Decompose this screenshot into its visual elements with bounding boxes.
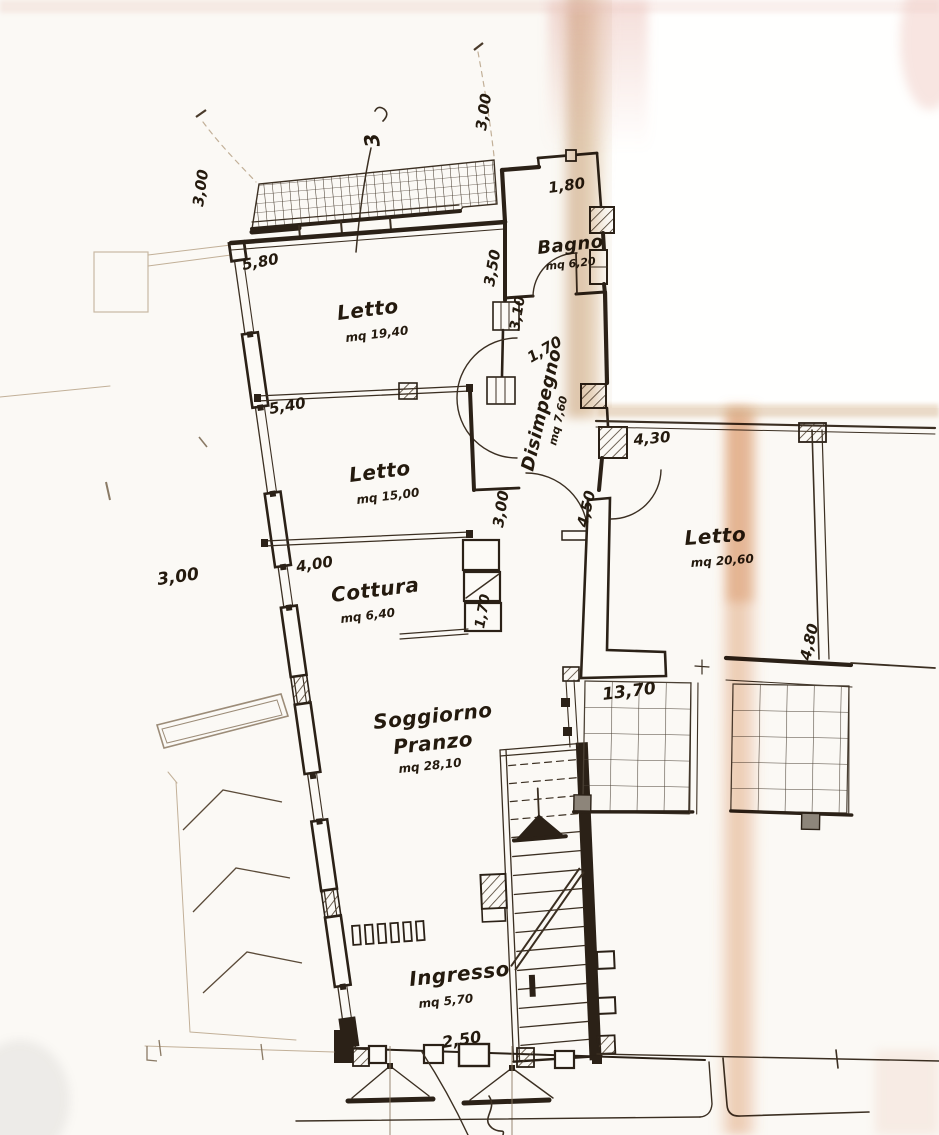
- cupboard-cell: [463, 540, 499, 570]
- counter-line: [400, 629, 468, 639]
- door-leaf: [562, 531, 588, 540]
- room-label-letto-1: Letto: [336, 294, 400, 325]
- dim-4-30: 4,30: [632, 428, 671, 449]
- room-label-ingresso: Ingresso: [408, 957, 511, 991]
- room-label-pranzo: Pranzo: [392, 727, 474, 759]
- parking-chevrons: [183, 790, 302, 993]
- room-area-ingresso: mq 5,70: [418, 991, 474, 1011]
- pillar-hatch: [517, 1048, 534, 1067]
- dim-3-50: 3,50: [480, 248, 504, 288]
- pillar-hatch: [353, 1048, 369, 1066]
- tile-block: [574, 795, 591, 811]
- exterior-wall-left: [228, 241, 359, 1048]
- corner-pillar: [334, 1030, 353, 1063]
- planter-strip: [157, 694, 288, 748]
- dim-top-right: 3,00: [472, 92, 495, 131]
- room-label-cottura: Cottura: [330, 572, 421, 607]
- room-area-cottura: mq 6,40: [340, 605, 396, 626]
- room-area-letto-1: mq 19,40: [345, 323, 409, 345]
- wall-hatch: [598, 1035, 616, 1054]
- dim-top-left: 3,00: [189, 168, 212, 207]
- wall-hatch: [321, 889, 341, 918]
- stair-steps: [512, 832, 589, 1046]
- partition-hatch: [399, 383, 417, 399]
- leader-line: [390, 1046, 512, 1135]
- scanned-floor-plan-page: Letto mq 19,40 Bagno mq 6,20 Disimpegno …: [0, 0, 939, 1135]
- door-jamb: [487, 377, 515, 404]
- room-label-letto-2: Letto: [348, 456, 412, 487]
- pillar-hatch-430: [599, 427, 627, 458]
- radiator: [352, 921, 425, 945]
- floor-plan-svg: Letto mq 19,40 Bagno mq 6,20 Disimpegno …: [0, 0, 939, 1135]
- sidewalk-line: [296, 1117, 700, 1121]
- wall-hatch: [480, 874, 506, 909]
- dim-5-40: 5,40: [268, 394, 308, 418]
- room-area-letto-2: mq 15,00: [356, 485, 420, 507]
- stair-rail: [507, 868, 587, 969]
- dim-4-00: 4,00: [294, 552, 334, 576]
- neighbor-top-wall: [596, 421, 935, 428]
- door-arc-neighbor: [611, 470, 661, 519]
- handwritten-mark: 3: [359, 131, 385, 149]
- site-boundary: [168, 772, 296, 1040]
- room-label-soggiorno: Soggiorno: [372, 698, 494, 734]
- dim-3-10: 3,10: [507, 295, 529, 332]
- entrance-front: [145, 1030, 712, 1135]
- entrance-canopy: [348, 1063, 553, 1103]
- dim-3-00-site: 3,00: [156, 564, 200, 590]
- tile-block: [801, 813, 819, 829]
- pen-curl: [375, 107, 387, 121]
- site-marks: [157, 694, 302, 1040]
- dim-3-00-letto2: 3,00: [489, 489, 513, 528]
- l-shaped-wall: [581, 498, 666, 678]
- dim-tick: [695, 660, 709, 674]
- dim-ticks: [147, 1040, 263, 1061]
- room-area-soggiorno: mq 28,10: [398, 755, 462, 776]
- wall-hatch: [291, 675, 311, 705]
- wall-hatch: [563, 667, 579, 681]
- partition-wall: [264, 532, 470, 546]
